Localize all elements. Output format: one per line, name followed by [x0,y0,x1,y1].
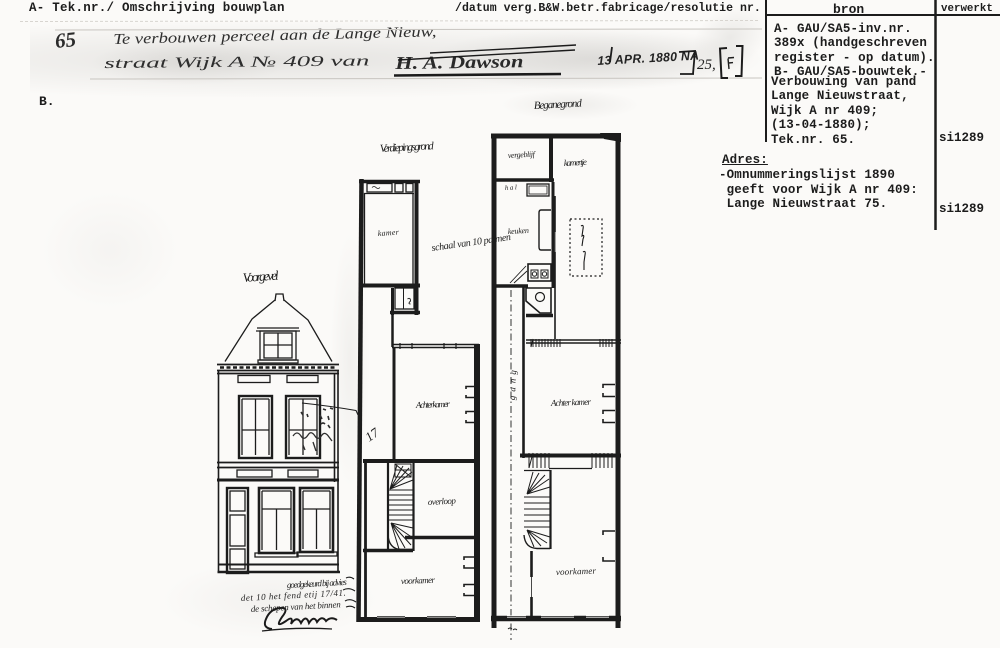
svg-text:voorkamer: voorkamer [556,566,597,577]
svg-text:hal: hal [505,183,517,192]
svg-text:keuken: keuken [508,226,529,236]
svg-text:Beganegrond: Beganegrond [534,97,583,112]
svg-text:vergeblijf: vergeblijf [508,150,537,160]
svg-text:gang: gang [507,370,518,401]
svg-text:Achter kamer: Achter kamer [550,397,592,408]
svg-text:kamertje: kamertje [564,157,587,168]
